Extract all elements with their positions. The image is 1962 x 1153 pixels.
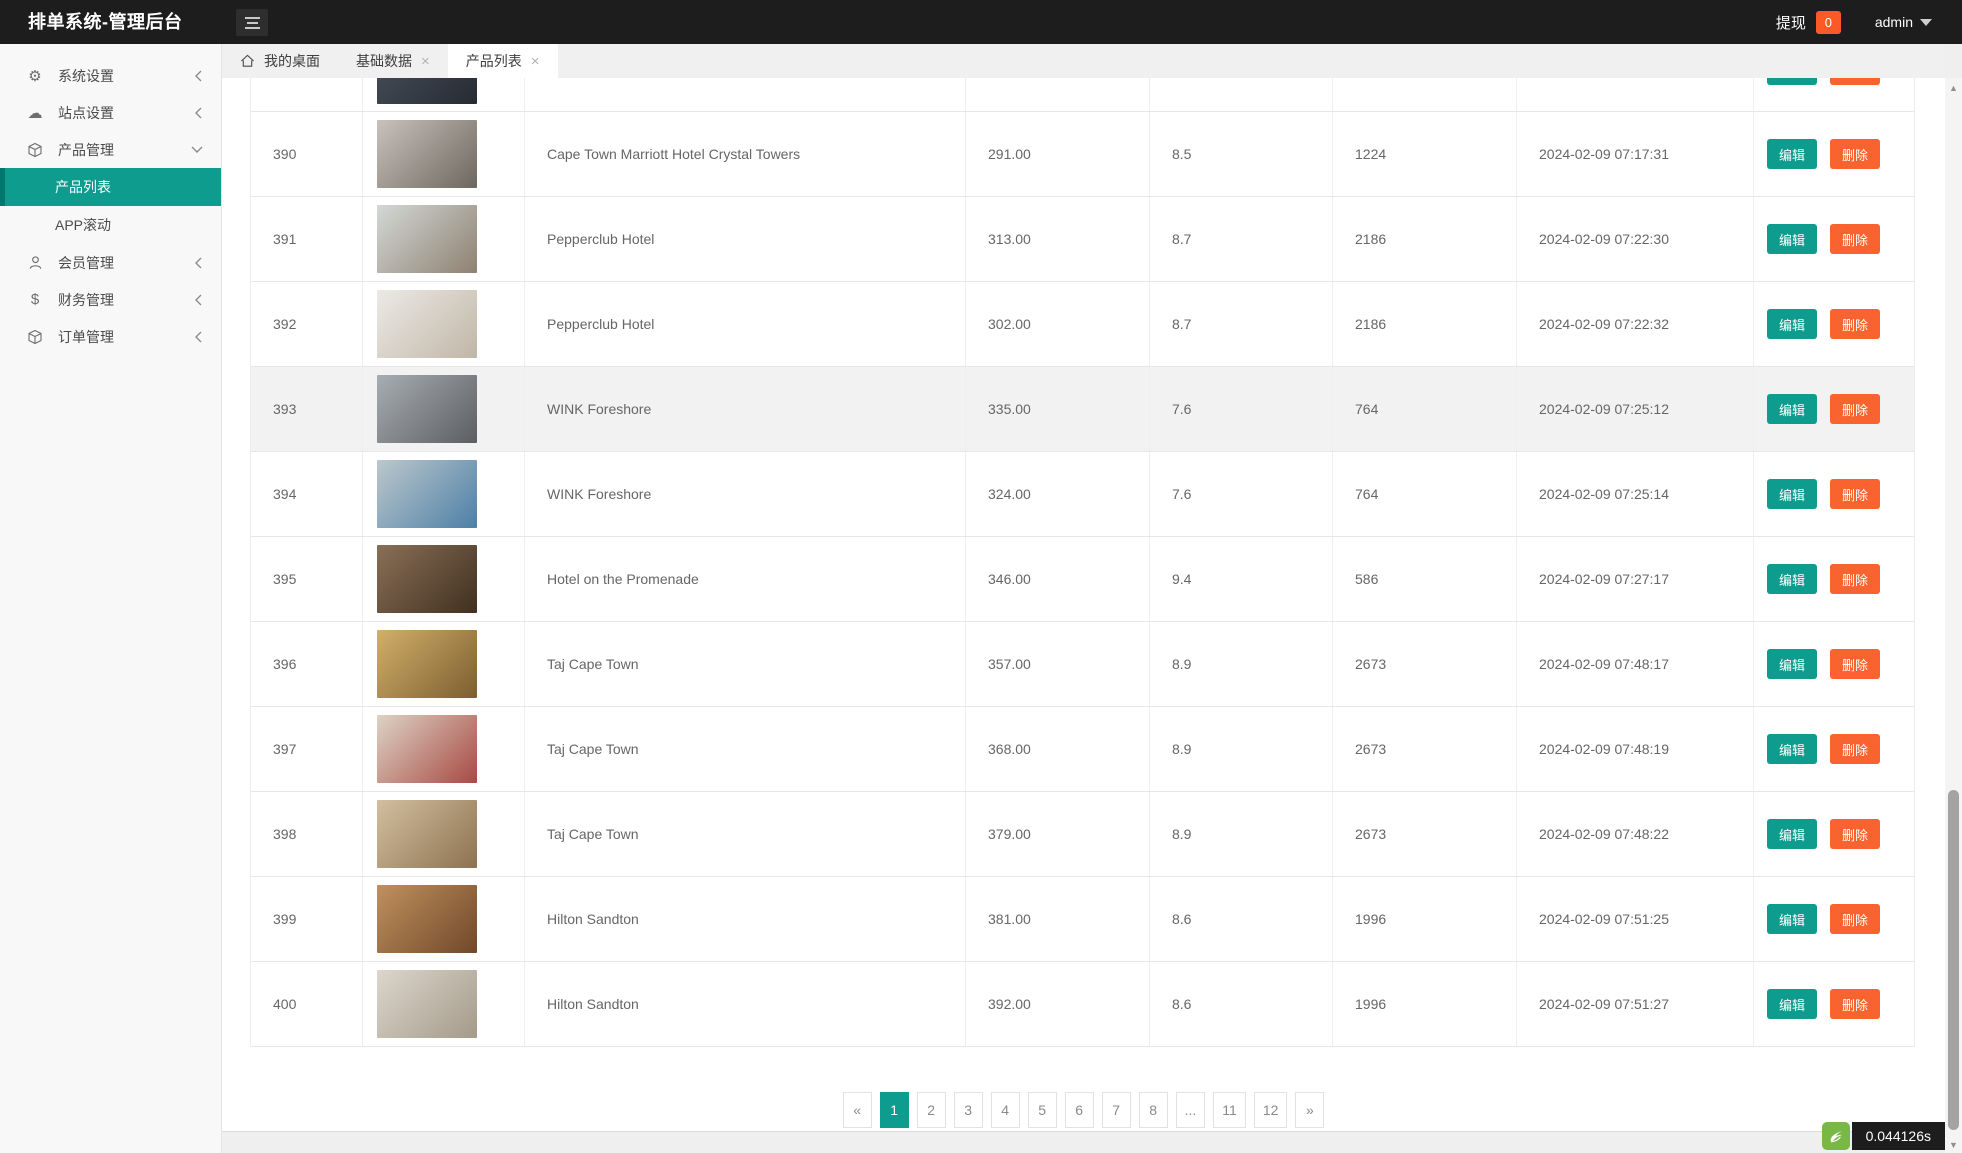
- cell-time: 2024-02-09 07:48:22: [1516, 792, 1753, 876]
- hamburger-menu-button[interactable]: [236, 9, 268, 36]
- sidebar-item-label: 站点设置: [58, 103, 194, 123]
- sidebar-subitem-label: 产品列表: [55, 177, 111, 197]
- hotel-photo: [377, 800, 477, 868]
- cell-time: 2024-02-09 07:51:25: [1516, 877, 1753, 961]
- cloud-icon: ☁: [26, 104, 44, 122]
- cell-name: WINK Foreshore: [524, 367, 965, 451]
- cell-id: 394: [251, 452, 362, 536]
- cell-sales: 1224: [1332, 112, 1516, 196]
- cell-actions: 编辑 删除: [1753, 792, 1916, 876]
- table-row-partial: 编辑 删除: [251, 78, 1914, 112]
- tab-bar: 我的桌面 基础数据 × 产品列表 ×: [222, 44, 1945, 78]
- cell-sales: 2673: [1332, 792, 1516, 876]
- page-button[interactable]: ...: [1176, 1092, 1206, 1128]
- cell-id: 390: [251, 112, 362, 196]
- cell-score: 7.6: [1149, 452, 1332, 536]
- thinkphp-leaf-icon: [1822, 1122, 1850, 1150]
- cell-time: 2024-02-09 07:17:31: [1516, 112, 1753, 196]
- edit-button[interactable]: 编辑: [1767, 394, 1817, 424]
- cell-id: 391: [251, 197, 362, 281]
- cell-image: [362, 792, 524, 876]
- cell-time: 2024-02-09 07:27:17: [1516, 537, 1753, 621]
- admin-screen: 排单系统-管理后台 提现 0 admin ⚙ 系统设置 ☁ 站点设置: [0, 0, 1962, 1153]
- cell-price: 368.00: [965, 707, 1149, 791]
- table-row: 399 Hilton Sandton 381.00 8.6 1996 2024-…: [251, 877, 1914, 962]
- cube-icon: [26, 142, 44, 158]
- cell-score: 8.9: [1149, 707, 1332, 791]
- cell-time: 2024-02-09 07:22:30: [1516, 197, 1753, 281]
- table-row: 397 Taj Cape Town 368.00 8.9 2673 2024-0…: [251, 707, 1914, 792]
- page-button[interactable]: 6: [1065, 1092, 1094, 1128]
- user-dropdown[interactable]: admin: [1875, 14, 1932, 30]
- hotel-photo: [377, 460, 477, 528]
- table-row: 398 Taj Cape Town 379.00 8.9 2673 2024-0…: [251, 792, 1914, 877]
- edit-button[interactable]: 编辑: [1767, 224, 1817, 254]
- tab-basic-data[interactable]: 基础数据 ×: [338, 44, 448, 78]
- page-button[interactable]: 3: [954, 1092, 983, 1128]
- tab-product-list[interactable]: 产品列表 ×: [448, 44, 558, 78]
- sidebar-item-finance-management[interactable]: $ 财务管理: [0, 281, 221, 318]
- user-icon: [26, 255, 44, 270]
- cell-name: Pepperclub Hotel: [524, 197, 965, 281]
- cell-price: 381.00: [965, 877, 1149, 961]
- tab-my-desktop[interactable]: 我的桌面: [222, 44, 338, 78]
- cell-price: 357.00: [965, 622, 1149, 706]
- cell-price: 324.00: [965, 452, 1149, 536]
- edit-button[interactable]: 编辑: [1767, 564, 1817, 594]
- sidebar-item-system-settings[interactable]: ⚙ 系统设置: [0, 57, 221, 94]
- cell-actions: 编辑 删除: [1753, 877, 1916, 961]
- content-panel: 编辑 删除 390 Cape Town Marriott Hotel Cryst…: [222, 78, 1945, 1132]
- hotel-photo: [377, 970, 477, 1038]
- table-row: 390 Cape Town Marriott Hotel Crystal Tow…: [251, 112, 1914, 197]
- cell-price: 291.00: [965, 112, 1149, 196]
- cell-score: 8.6: [1149, 877, 1332, 961]
- chevron-down-icon: [191, 145, 203, 154]
- cell-sales: 2186: [1332, 282, 1516, 366]
- cell-name: Taj Cape Town: [524, 622, 965, 706]
- cell-actions: 编辑 删除: [1753, 197, 1916, 281]
- delete-button[interactable]: 删除: [1830, 139, 1880, 169]
- cell-image: [362, 707, 524, 791]
- cell-price: 346.00: [965, 537, 1149, 621]
- tab-label: 基础数据: [356, 51, 412, 71]
- delete-button[interactable]: 删除: [1830, 479, 1880, 509]
- hotel-photo: [377, 78, 477, 104]
- chevron-left-icon: [194, 331, 203, 343]
- delete-button[interactable]: 删除: [1830, 78, 1880, 85]
- cell-image: [362, 622, 524, 706]
- sidebar: ⚙ 系统设置 ☁ 站点设置 产品管理 产品列表 APP滚动 会员管理 $ 财务管…: [0, 44, 222, 1153]
- cell-image: [362, 877, 524, 961]
- table-row: 392 Pepperclub Hotel 302.00 8.7 2186 202…: [251, 282, 1914, 367]
- hamburger-icon: [245, 17, 260, 19]
- cell-image: [362, 367, 524, 451]
- edit-button[interactable]: 编辑: [1767, 139, 1817, 169]
- cell-time: 2024-02-09 07:48:19: [1516, 707, 1753, 791]
- cell-time: 2024-02-09 07:25:12: [1516, 367, 1753, 451]
- delete-button[interactable]: 删除: [1830, 309, 1880, 339]
- cell-score: 9.4: [1149, 537, 1332, 621]
- cell-id: 393: [251, 367, 362, 451]
- edit-button[interactable]: 编辑: [1767, 819, 1817, 849]
- edit-button[interactable]: 编辑: [1767, 989, 1817, 1019]
- chevron-left-icon: [194, 70, 203, 82]
- delete-button[interactable]: 删除: [1830, 564, 1880, 594]
- cell-score: 8.7: [1149, 197, 1332, 281]
- hotel-photo: [377, 885, 477, 953]
- delete-button[interactable]: 删除: [1830, 734, 1880, 764]
- chevron-left-icon: [194, 294, 203, 306]
- sidebar-item-member-management[interactable]: 会员管理: [0, 244, 221, 281]
- hotel-photo: [377, 630, 477, 698]
- table-row: 400 Hilton Sandton 392.00 8.6 1996 2024-…: [251, 962, 1914, 1047]
- cell-name: Hilton Sandton: [524, 877, 965, 961]
- cell-actions: 编辑 删除: [1753, 112, 1916, 196]
- cell-sales: 1996: [1332, 877, 1516, 961]
- cell-actions: 编辑 删除: [1753, 622, 1916, 706]
- cell-time: 2024-02-09 07:48:17: [1516, 622, 1753, 706]
- cell-score: 8.9: [1149, 622, 1332, 706]
- cell-price: 379.00: [965, 792, 1149, 876]
- cell-name: Taj Cape Town: [524, 792, 965, 876]
- cell-image: [362, 452, 524, 536]
- table-row: 395 Hotel on the Promenade 346.00 9.4 58…: [251, 537, 1914, 622]
- hotel-photo: [377, 545, 477, 613]
- page-button[interactable]: 12: [1254, 1092, 1288, 1128]
- delete-button[interactable]: 删除: [1830, 649, 1880, 679]
- cell-id: 398: [251, 792, 362, 876]
- vertical-scrollbar[interactable]: ▲ ▼: [1945, 78, 1962, 1153]
- close-icon[interactable]: ×: [421, 54, 430, 69]
- page-button[interactable]: «: [843, 1092, 872, 1128]
- cell-id: 399: [251, 877, 362, 961]
- hotel-photo: [377, 715, 477, 783]
- sidebar-subitem-product-list[interactable]: 产品列表: [0, 168, 221, 206]
- cell-image: [362, 197, 524, 281]
- page-button[interactable]: 7: [1102, 1092, 1131, 1128]
- table-row: 393 WINK Foreshore 335.00 7.6 764 2024-0…: [251, 367, 1914, 452]
- cell-id: 395: [251, 537, 362, 621]
- cell-price: 302.00: [965, 282, 1149, 366]
- cell-price: 335.00: [965, 367, 1149, 451]
- chevron-down-icon: [1920, 19, 1932, 26]
- cell-score: 8.5: [1149, 112, 1332, 196]
- hotel-photo: [377, 290, 477, 358]
- tab-label: 我的桌面: [264, 51, 320, 71]
- header-right: 提现 0 admin: [1776, 0, 1932, 44]
- cell-id: 396: [251, 622, 362, 706]
- cell-score: 7.6: [1149, 367, 1332, 451]
- cell-image: [362, 112, 524, 196]
- scroll-down-arrow-icon[interactable]: ▼: [1945, 1137, 1962, 1153]
- cell-name: Hilton Sandton: [524, 962, 965, 1046]
- page-button[interactable]: 8: [1139, 1092, 1168, 1128]
- sidebar-item-label: 会员管理: [58, 253, 194, 273]
- chevron-left-icon: [194, 257, 203, 269]
- sidebar-item-label: 财务管理: [58, 290, 194, 310]
- home-icon: [240, 54, 255, 68]
- cell-id: 400: [251, 962, 362, 1046]
- cell-sales: 586: [1332, 537, 1516, 621]
- hotel-photo: [377, 205, 477, 273]
- sidebar-item-order-management[interactable]: 订单管理: [0, 318, 221, 355]
- withdraw-count-badge: 0: [1816, 11, 1841, 34]
- cell-sales: 764: [1332, 367, 1516, 451]
- table-row: 396 Taj Cape Town 357.00 8.9 2673 2024-0…: [251, 622, 1914, 707]
- edit-button[interactable]: 编辑: [1767, 649, 1817, 679]
- chevron-left-icon: [194, 107, 203, 119]
- scrollbar-thumb[interactable]: [1948, 790, 1959, 1130]
- withdraw-label: 提现: [1776, 12, 1806, 33]
- cell-actions: 编辑 删除: [1753, 282, 1916, 366]
- top-header: 排单系统-管理后台 提现 0 admin: [0, 0, 1962, 44]
- edit-button[interactable]: 编辑: [1767, 904, 1817, 934]
- cell-time: 2024-02-09 07:51:27: [1516, 962, 1753, 1046]
- sidebar-subitem-app-scroll[interactable]: APP滚动: [0, 206, 221, 244]
- product-table-body: 390 Cape Town Marriott Hotel Crystal Tow…: [251, 112, 1914, 1047]
- sidebar-item-label: 系统设置: [58, 66, 194, 86]
- page-button[interactable]: 2: [917, 1092, 946, 1128]
- cell-image: [362, 962, 524, 1046]
- cell-actions: 编辑 删除: [1753, 707, 1916, 791]
- cell-id: 397: [251, 707, 362, 791]
- cube-icon: [26, 329, 44, 345]
- product-table: 编辑 删除 390 Cape Town Marriott Hotel Cryst…: [250, 78, 1915, 1047]
- cell-actions: 编辑 删除: [1753, 962, 1916, 1046]
- sidebar-subitem-label: APP滚动: [55, 215, 111, 235]
- sidebar-item-site-settings[interactable]: ☁ 站点设置: [0, 94, 221, 131]
- cell-image: [362, 282, 524, 366]
- page-button[interactable]: »: [1295, 1092, 1324, 1128]
- cell-time: 2024-02-09 07:22:32: [1516, 282, 1753, 366]
- cell-name: Hotel on the Promenade: [524, 537, 965, 621]
- delete-button[interactable]: 删除: [1830, 904, 1880, 934]
- sidebar-item-label: 订单管理: [58, 327, 194, 347]
- cell-name: Cape Town Marriott Hotel Crystal Towers: [524, 112, 965, 196]
- edit-button[interactable]: 编辑: [1767, 78, 1817, 85]
- page-button[interactable]: 1: [880, 1092, 909, 1128]
- cell-sales: 2186: [1332, 197, 1516, 281]
- pagination: «12345678...1112»: [222, 1092, 1945, 1128]
- runtime-indicator: 0.044126s: [1822, 1122, 1945, 1150]
- hotel-photo: [377, 375, 477, 443]
- cell-sales: 2673: [1332, 707, 1516, 791]
- delete-button[interactable]: 删除: [1830, 819, 1880, 849]
- cell-sales: 2673: [1332, 622, 1516, 706]
- cell-actions: 编辑 删除: [1753, 367, 1916, 451]
- close-icon[interactable]: ×: [531, 54, 540, 69]
- cell-score: 8.9: [1149, 792, 1332, 876]
- load-time-badge: 0.044126s: [1852, 1122, 1945, 1150]
- table-row: 391 Pepperclub Hotel 313.00 8.7 2186 202…: [251, 197, 1914, 282]
- sidebar-item-label: 产品管理: [58, 140, 191, 160]
- page-button[interactable]: 4: [991, 1092, 1020, 1128]
- withdraw-menu[interactable]: 提现 0: [1776, 11, 1841, 34]
- cell-time: 2024-02-09 07:25:14: [1516, 452, 1753, 536]
- username: admin: [1875, 14, 1913, 30]
- delete-button[interactable]: 删除: [1830, 394, 1880, 424]
- cell-score: 8.6: [1149, 962, 1332, 1046]
- table-row: 394 WINK Foreshore 324.00 7.6 764 2024-0…: [251, 452, 1914, 537]
- app-title: 排单系统-管理后台: [28, 0, 183, 44]
- dollar-icon: $: [26, 291, 44, 308]
- cell-actions: 编辑 删除: [1753, 452, 1916, 536]
- sidebar-item-product-management[interactable]: 产品管理: [0, 131, 221, 168]
- delete-button[interactable]: 删除: [1830, 224, 1880, 254]
- page-button[interactable]: 11: [1213, 1092, 1246, 1128]
- scroll-up-arrow-icon[interactable]: ▲: [1945, 80, 1962, 96]
- cell-price: 392.00: [965, 962, 1149, 1046]
- tab-label: 产品列表: [466, 51, 522, 71]
- edit-button[interactable]: 编辑: [1767, 309, 1817, 339]
- delete-button[interactable]: 删除: [1830, 989, 1880, 1019]
- cell-price: 313.00: [965, 197, 1149, 281]
- gear-icon: ⚙: [26, 67, 44, 85]
- cell-sales: 764: [1332, 452, 1516, 536]
- cell-id: 392: [251, 282, 362, 366]
- cell-actions: 编辑 删除: [1753, 537, 1916, 621]
- cell-image: [362, 537, 524, 621]
- edit-button[interactable]: 编辑: [1767, 734, 1817, 764]
- edit-button[interactable]: 编辑: [1767, 479, 1817, 509]
- hotel-photo: [377, 120, 477, 188]
- cell-name: WINK Foreshore: [524, 452, 965, 536]
- cell-sales: 1996: [1332, 962, 1516, 1046]
- cell-name: Pepperclub Hotel: [524, 282, 965, 366]
- cell-score: 8.7: [1149, 282, 1332, 366]
- cell-name: Taj Cape Town: [524, 707, 965, 791]
- page-button[interactable]: 5: [1028, 1092, 1057, 1128]
